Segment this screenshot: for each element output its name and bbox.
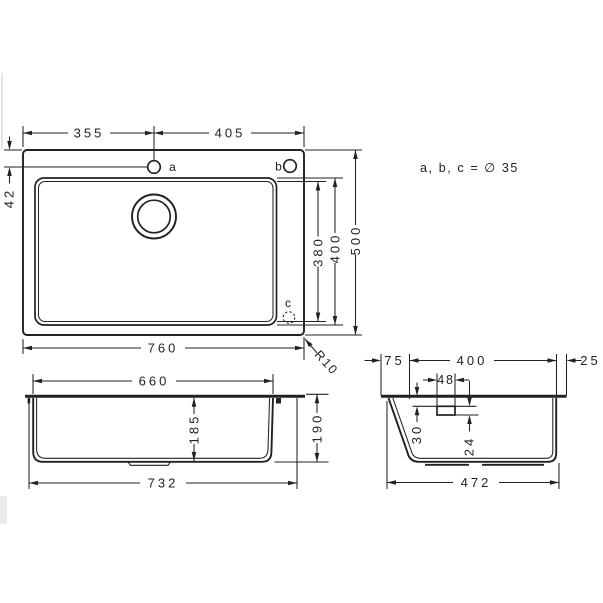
drain-inner xyxy=(138,200,171,233)
front-bowl-inner xyxy=(37,398,270,458)
dimension-732: 732 xyxy=(29,398,297,490)
dim-400-side-label: 400 xyxy=(457,353,488,368)
dimension-30: 30 xyxy=(409,383,424,445)
dimension-660: 660 xyxy=(33,373,273,394)
bowl-outline-inner xyxy=(39,182,274,322)
hole-c-label: c xyxy=(285,296,291,310)
dim-500-label: 500 xyxy=(348,225,363,256)
holes-diameter-note: a, b, c = ∅ 35 xyxy=(420,161,519,175)
dim-24-label: 24 xyxy=(461,436,476,456)
dim-185-label: 185 xyxy=(186,414,201,445)
drain-outlet-box xyxy=(437,406,455,415)
dim-400-label: 400 xyxy=(327,233,342,264)
dim-75-label: 75 xyxy=(384,353,404,368)
dimension-760: 760 xyxy=(23,337,304,360)
radius-callout: R10 xyxy=(305,339,341,378)
dim-732-label: 732 xyxy=(148,475,179,490)
top-view: a b c xyxy=(23,150,304,335)
front-bowl-outer xyxy=(33,398,273,462)
dimension-75-400-25: 75 400 25 xyxy=(365,353,601,399)
hole-a-label: a xyxy=(169,160,176,174)
dim-25-label: 25 xyxy=(580,353,600,368)
hole-b-label: b xyxy=(275,159,282,173)
tap-hole-b xyxy=(284,160,297,173)
front-view xyxy=(25,396,305,465)
dimension-190: 190 xyxy=(275,394,329,462)
radius-r10-label: R10 xyxy=(312,348,341,378)
sink-dimension-drawing: a b c 355 405 42 xyxy=(0,0,603,603)
dim-760-label: 760 xyxy=(148,340,179,355)
technical-drawing-page: a b c 355 405 42 xyxy=(0,0,603,603)
dim-472-label: 472 xyxy=(461,475,492,490)
dim-660-label: 660 xyxy=(139,373,170,388)
dimension-24: 24 xyxy=(461,381,476,457)
drain-outer xyxy=(132,195,176,239)
tap-hole-a xyxy=(148,161,161,174)
scan-artifact xyxy=(0,496,7,524)
dim-42-label: 42 xyxy=(1,188,16,208)
dim-48-label: 48 xyxy=(437,373,455,387)
dim-30-label: 30 xyxy=(409,424,424,444)
dimension-355-405: 355 405 xyxy=(23,125,304,160)
dim-355-label: 355 xyxy=(74,125,105,140)
dim-380-label: 380 xyxy=(310,236,325,267)
front-clip-right xyxy=(276,398,281,404)
dim-190-label: 190 xyxy=(309,413,324,444)
dimension-48: 48 xyxy=(423,373,469,406)
dim-405-label: 405 xyxy=(215,125,246,140)
dimension-185: 185 xyxy=(186,398,201,461)
